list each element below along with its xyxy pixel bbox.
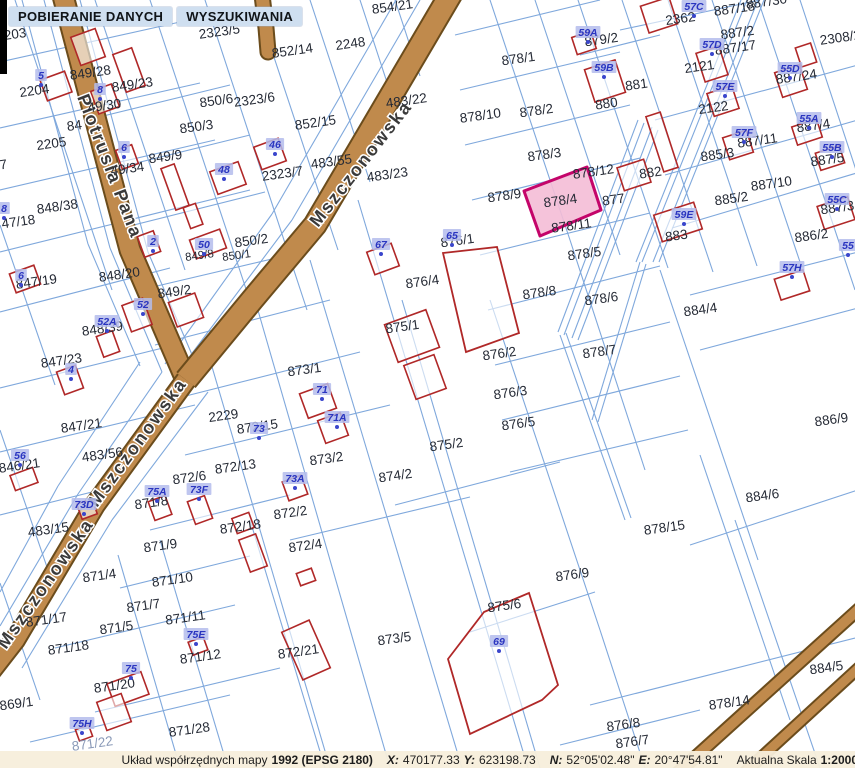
- parcel-label: 878/8: [522, 283, 558, 303]
- address-badge: 8: [1, 203, 7, 215]
- parcel-label: 876/9: [555, 565, 591, 585]
- address-badge: 73A: [285, 473, 304, 485]
- parcel-label: 7: [0, 157, 8, 173]
- y-label: Y:: [464, 753, 475, 767]
- status-bar: Układ współrzędnych mapy 1992 (EPSG 2180…: [0, 751, 855, 768]
- parcel-label: 876/4: [405, 272, 441, 292]
- address-badge: 59A: [578, 27, 597, 39]
- cadastral-map[interactable]: 878/4 Piotrusia PanaMszczonowskaMszczono…: [0, 0, 855, 768]
- address-badge: 75H: [72, 718, 92, 730]
- parcel-label: 887/10: [750, 173, 793, 194]
- address-badge: 55B: [822, 142, 842, 154]
- address-badge: 57H: [782, 262, 802, 274]
- coord-system-label: Układ współrzędnych mapy: [121, 753, 267, 767]
- address-badge: 8: [97, 84, 103, 96]
- parcel-label: 884/6: [745, 486, 781, 506]
- parcel-label: 84: [66, 117, 83, 134]
- parcel-label: 878/7: [582, 342, 618, 362]
- menu-wyszukiwania[interactable]: WYSZUKIWANIA: [177, 7, 302, 26]
- address-badge: 55D: [780, 63, 800, 75]
- parcel-label: 884/4: [683, 300, 719, 320]
- parcel-label: 876/5: [501, 414, 537, 434]
- parcel-label: 2229: [207, 406, 239, 425]
- parcel-label: 871/12: [179, 646, 222, 667]
- parcel-label: 873/2: [309, 449, 345, 469]
- parcel-label: 874/2: [378, 466, 414, 486]
- parcel-label: 849/9: [148, 147, 184, 167]
- parcel-label: 483/23: [366, 164, 409, 185]
- parcel-label: 882: [638, 164, 662, 182]
- parcel-label: 885/2: [714, 189, 750, 209]
- parcel-label: 886/9: [814, 410, 850, 430]
- address-badge: 73F: [190, 484, 209, 496]
- parcel-label: 872/4: [288, 536, 324, 556]
- parcel-label: 2248: [334, 34, 366, 53]
- parcel-label: 877: [601, 191, 625, 209]
- parcel-label: 871/5: [99, 618, 135, 638]
- parcel-label: 871/9: [143, 536, 179, 556]
- e-value: 20°47'54.81": [654, 753, 722, 767]
- address-badge: 46: [268, 139, 281, 151]
- parcel-label: 872/13: [214, 456, 257, 477]
- parcel-label: 880: [594, 95, 618, 113]
- parcel-label: 852/14: [271, 40, 314, 61]
- parcel-label: 878/10: [459, 105, 502, 126]
- address-badge: 57D: [702, 39, 722, 51]
- parcel-label: 873/5: [377, 629, 413, 649]
- parcel-label: 871/4: [82, 566, 118, 586]
- parcel-label: 886/2: [794, 226, 830, 246]
- parcel-label: 871/28: [168, 719, 211, 740]
- parcel-label: 869/1: [0, 694, 34, 714]
- parcel-label: 850/1: [221, 248, 251, 264]
- parcel-label: 878/12: [572, 161, 615, 182]
- parcel-label: 875/2: [429, 435, 465, 455]
- parcel-label: 878/6: [584, 289, 620, 309]
- parcel-label: 871/10: [151, 569, 194, 590]
- address-badge: 52: [137, 299, 149, 311]
- address-badge: 73: [253, 423, 265, 435]
- parcel-label: 887/18: [713, 0, 756, 19]
- address-badge: 75: [125, 663, 137, 675]
- address-badge: 57F: [735, 127, 754, 139]
- parcel-label: 871/11: [164, 607, 206, 627]
- n-value: 52°05'02.48": [566, 753, 634, 767]
- scale-label: Aktualna Skala: [737, 753, 817, 767]
- parcel-label: 883: [664, 227, 688, 245]
- y-value: 623198.73: [479, 753, 536, 767]
- address-badge: 67: [375, 239, 388, 251]
- x-value: 470177.33: [403, 753, 460, 767]
- parcel-label: 854/21: [371, 0, 414, 17]
- scale-value: 1:2000: [821, 753, 855, 767]
- address-badge: 75A: [147, 486, 166, 498]
- parcel-label: 848/38: [36, 196, 79, 217]
- address-badge: 2: [149, 236, 156, 248]
- parcel-label: 2323/6: [233, 89, 276, 110]
- parcel-label: 2308/2: [819, 27, 855, 48]
- parcel-label: 850/6: [199, 91, 235, 111]
- n-label: N:: [550, 753, 563, 767]
- address-badge: 55C: [827, 194, 847, 206]
- address-badge: 52A: [97, 316, 116, 328]
- parcel-label: 878/9: [487, 186, 523, 206]
- address-badge: 65: [446, 230, 458, 242]
- top-menu: POBIERANIE DANYCH WYSZUKIWANIA: [9, 7, 302, 26]
- address-badge: 4: [67, 364, 74, 376]
- parcel-label: 884/5: [809, 658, 845, 678]
- parcel-label: 873/1: [287, 360, 323, 380]
- address-badge: 5: [38, 70, 44, 82]
- parcel-label: 852/15: [294, 112, 337, 133]
- parcel-label: 878/2: [519, 101, 555, 121]
- address-badge: 57C: [684, 1, 704, 13]
- x-label: X:: [387, 753, 399, 767]
- coord-system-value: 1992 (EPSG 2180): [272, 753, 373, 767]
- address-badge: 6: [18, 270, 24, 282]
- parcel-label: 2122: [697, 98, 729, 117]
- address-badge: 57E: [716, 81, 736, 93]
- address-badge: 59E: [675, 209, 695, 221]
- parcel-label: 850/2: [234, 231, 270, 251]
- address-badge: 55: [842, 240, 854, 252]
- e-label: E:: [638, 753, 650, 767]
- parcel-label: 878/1: [501, 49, 537, 69]
- parcel-label: 878/15: [643, 517, 686, 538]
- address-badge: 56: [14, 450, 26, 462]
- address-badge: 55A: [799, 113, 818, 125]
- street-label: Mszczonowska: [84, 374, 191, 510]
- address-badge: 69: [493, 636, 505, 648]
- address-badge: 71: [316, 384, 328, 396]
- parcel-label: 849/23: [111, 74, 154, 95]
- parcel-label: 876/7: [615, 732, 651, 752]
- menu-pobieranie-danych[interactable]: POBIERANIE DANYCH: [9, 7, 172, 26]
- address-badge: 73D: [74, 499, 94, 511]
- map-viewport[interactable]: 878/4 Piotrusia PanaMszczonowskaMszczono…: [0, 0, 855, 768]
- parcel-label: 871/18: [47, 637, 90, 658]
- address-badge: 59B: [594, 62, 614, 74]
- parcel-label: 881: [624, 76, 648, 94]
- address-badge: 75E: [187, 629, 207, 641]
- parcel-label: 876/8: [606, 715, 642, 735]
- parcel-label: 878/3: [527, 145, 563, 165]
- address-badge: 48: [217, 164, 230, 176]
- address-badge: 50: [198, 239, 210, 251]
- address-badge: 6: [121, 142, 127, 154]
- parcel-label: 847/21: [60, 415, 103, 436]
- parcel-label: 872/2: [273, 503, 309, 523]
- parcel-label: 850/3: [179, 117, 215, 137]
- panel-corner: [0, 0, 7, 74]
- address-badge: 71A: [327, 412, 346, 424]
